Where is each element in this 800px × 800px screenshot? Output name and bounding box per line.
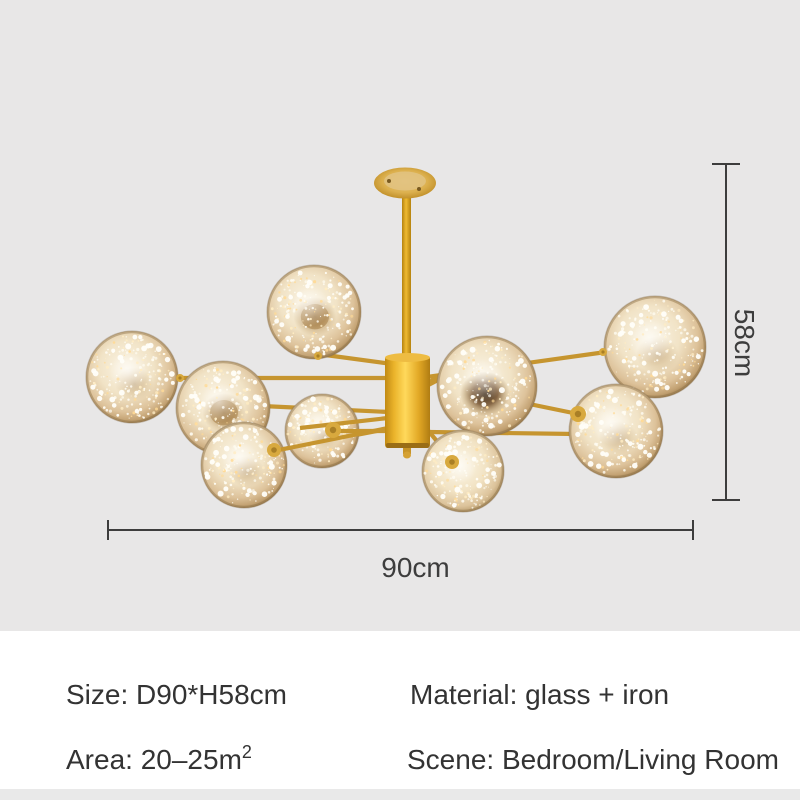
svg-text:Material: glass + iron: Material: glass + iron	[410, 679, 669, 710]
svg-text:90cm: 90cm	[381, 552, 449, 583]
svg-text:58cm: 58cm	[729, 309, 760, 377]
svg-text:Scene: Bedroom/Living Room: Scene: Bedroom/Living Room	[407, 744, 779, 775]
svg-text:Area: 20–25m2: Area: 20–25m2	[66, 742, 252, 775]
svg-text:Size: D90*H58cm: Size: D90*H58cm	[66, 679, 287, 710]
